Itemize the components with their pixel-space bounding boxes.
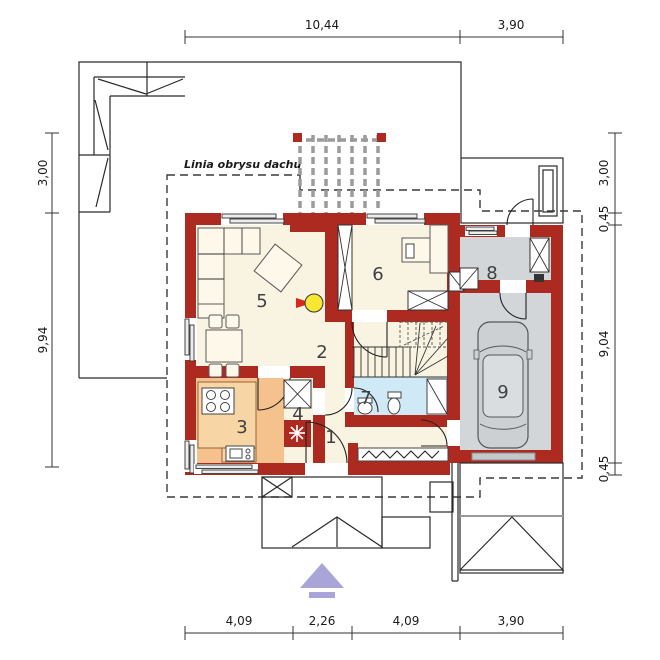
dimension-left: 3,00 9,94 xyxy=(36,133,59,467)
garage-door xyxy=(472,453,535,460)
pergola-post-right xyxy=(377,133,386,142)
dim-bottom-4: 3,90 xyxy=(498,614,525,628)
dim-right-4: 0,45 xyxy=(597,456,611,483)
entrance-porch xyxy=(262,477,430,548)
fence-line xyxy=(452,463,458,581)
chair xyxy=(209,364,222,377)
wall-room5-room6 xyxy=(325,213,338,312)
desk-return xyxy=(430,225,448,273)
garage-apron xyxy=(430,463,563,581)
room-label-1: 1 xyxy=(325,427,336,448)
room-label-8: 8 xyxy=(486,263,497,284)
pergola-post-left xyxy=(293,133,302,142)
room-label-3: 3 xyxy=(236,417,247,438)
room-label-5: 5 xyxy=(256,291,267,312)
wall-garage-right xyxy=(551,225,563,463)
dim-left-2: 9,94 xyxy=(36,327,50,354)
dim-right-3: 9,04 xyxy=(597,331,611,358)
wall-bath-bottom xyxy=(345,415,460,427)
room-label-6: 6 xyxy=(372,264,383,285)
toilet-tank xyxy=(388,392,401,398)
dim-bottom-3: 4,09 xyxy=(393,614,420,628)
dim-top-main: 10,44 xyxy=(305,18,339,32)
room-label-2: 2 xyxy=(316,342,327,363)
back-terrace xyxy=(461,158,563,223)
chair xyxy=(209,315,222,328)
hall-closet xyxy=(358,448,448,461)
chair xyxy=(226,364,239,377)
dimension-top: 10,44 3,90 xyxy=(185,18,563,44)
monitor-icon xyxy=(406,244,414,258)
dim-right-1: 3,00 xyxy=(597,160,611,187)
floor-plan-drawing: 10,44 3,90 4,09 2,26 4,09 3,90 3,00 9,94… xyxy=(0,0,660,660)
room-label-7: 7 xyxy=(360,388,371,409)
wall-room6-bottom xyxy=(387,310,460,322)
entrance-arrow-icon xyxy=(300,563,344,598)
dim-right-2: 0,45 xyxy=(597,206,611,233)
dim-top-garage: 3,90 xyxy=(498,18,525,32)
dimension-right: 3,00 0,45 9,04 0,45 xyxy=(597,133,622,482)
chair xyxy=(226,315,239,328)
wall-hall-bottom xyxy=(358,461,450,475)
pergola xyxy=(293,133,386,213)
dining-table xyxy=(206,330,242,362)
room-label-4: 4 xyxy=(292,404,303,425)
dim-bottom-2: 2,26 xyxy=(309,614,336,628)
floor-plan-page: 10,44 3,90 4,09 2,26 4,09 3,90 3,00 9,94… xyxy=(0,0,660,660)
corner-terrace-structure xyxy=(79,62,185,212)
dim-left-1: 3,00 xyxy=(36,160,50,187)
room-label-9: 9 xyxy=(497,382,508,403)
roof-outline-label: Linia obrysu dachu xyxy=(184,158,302,171)
dim-bottom-1: 4,09 xyxy=(226,614,253,628)
dimension-bottom: 4,09 2,26 4,09 3,90 xyxy=(185,614,563,640)
stove xyxy=(202,388,234,414)
toilet-icon xyxy=(388,398,400,414)
